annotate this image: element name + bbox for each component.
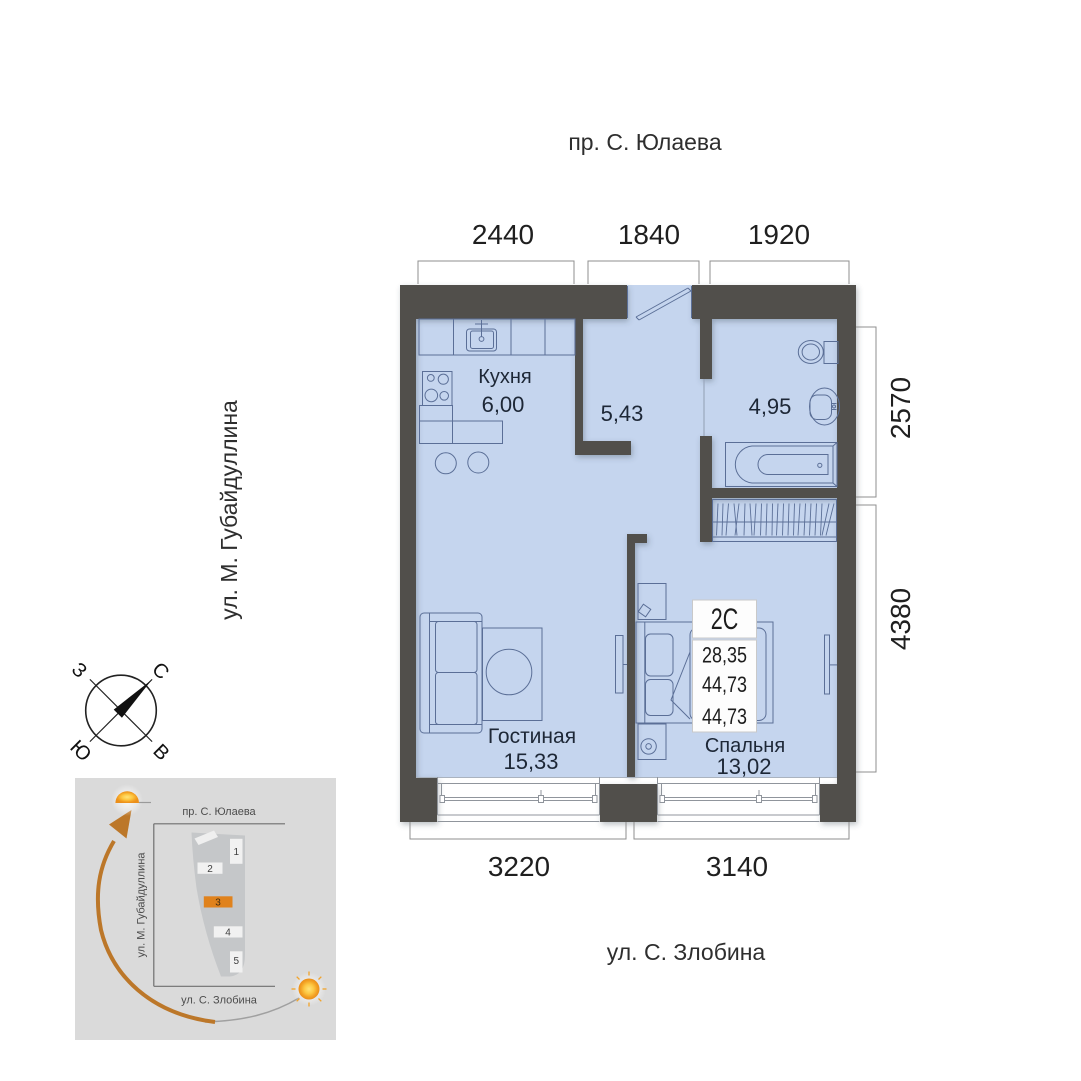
svg-text:1840: 1840 — [618, 219, 680, 250]
svg-text:4380: 4380 — [885, 588, 916, 650]
svg-text:пр. С. Юлаева: пр. С. Юлаева — [568, 129, 722, 155]
svg-text:ул. С. Злобина: ул. С. Злобина — [607, 939, 766, 965]
svg-text:5: 5 — [234, 956, 240, 967]
svg-text:2570: 2570 — [885, 377, 916, 439]
svg-text:ул. М. Губайдуллина: ул. М. Губайдуллина — [216, 400, 242, 620]
svg-text:Гостиная: Гостиная — [488, 725, 576, 748]
svg-text:28,35: 28,35 — [702, 643, 747, 668]
svg-text:2С: 2С — [711, 603, 739, 636]
svg-text:1: 1 — [234, 847, 240, 858]
svg-text:4: 4 — [225, 928, 231, 939]
svg-text:4,95: 4,95 — [749, 394, 792, 419]
svg-text:3140: 3140 — [706, 851, 768, 882]
svg-text:2440: 2440 — [472, 219, 534, 250]
svg-text:2: 2 — [207, 864, 213, 875]
svg-text:3: 3 — [215, 898, 221, 909]
svg-text:15,33: 15,33 — [503, 749, 558, 774]
svg-text:ул. С. Злобина: ул. С. Злобина — [181, 995, 258, 1007]
svg-text:3220: 3220 — [488, 851, 550, 882]
svg-text:6,00: 6,00 — [482, 392, 525, 417]
svg-text:З: З — [67, 658, 91, 682]
svg-text:ул. М. Губайдуллина: ул. М. Губайдуллина — [136, 852, 148, 958]
svg-text:44,73: 44,73 — [702, 672, 747, 697]
svg-text:пр. С. Юлаева: пр. С. Юлаева — [182, 806, 256, 818]
svg-text:Кухня: Кухня — [478, 366, 532, 388]
svg-text:44,73: 44,73 — [702, 704, 747, 729]
svg-text:5,43: 5,43 — [601, 401, 644, 426]
svg-text:В: В — [148, 740, 173, 765]
svg-text:1920: 1920 — [748, 219, 810, 250]
svg-text:13,02: 13,02 — [716, 754, 771, 779]
